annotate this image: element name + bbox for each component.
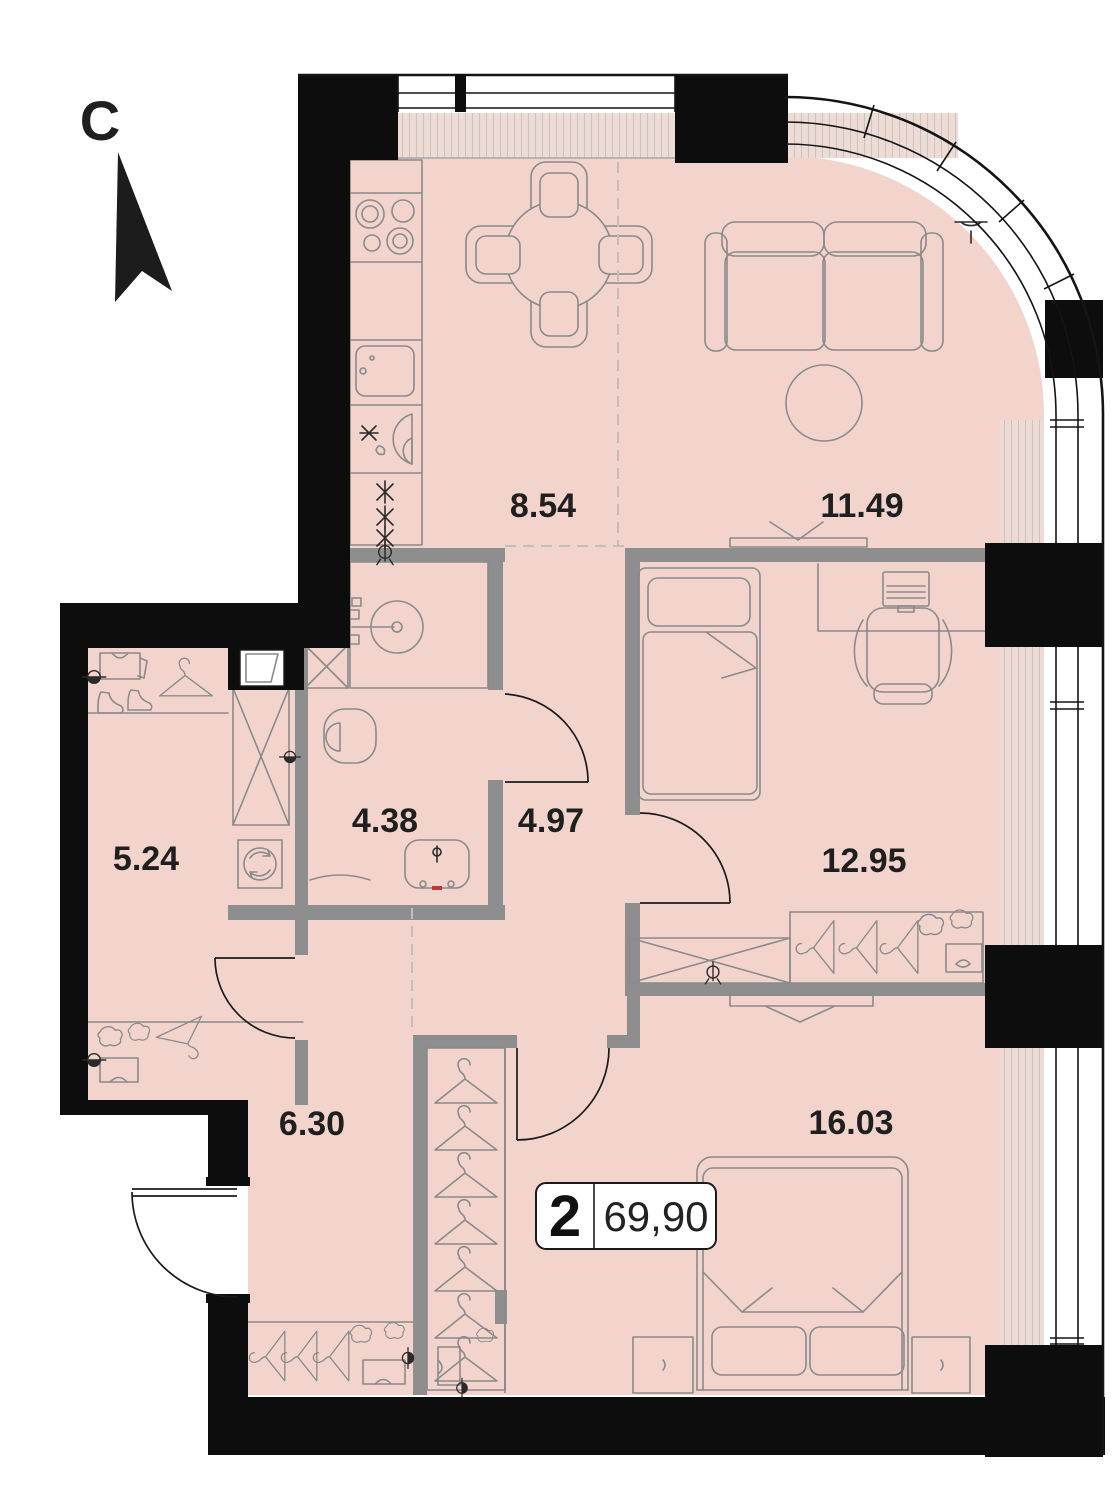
area-label-bedroom: 12.95 [821, 842, 906, 880]
entrance-door [132, 1189, 237, 1297]
area-label-corridor: 6.30 [279, 1105, 345, 1143]
floor-plan-page: 8.54 11.49 5.24 4.38 4.97 12.95 6.30 16.… [0, 0, 1115, 1495]
area-label-hallway: 4.97 [518, 802, 584, 840]
drain-mark [432, 886, 442, 890]
badge-total-area: 69,90 [603, 1193, 708, 1240]
area-label-kitchen: 8.54 [510, 487, 576, 525]
north-arrow-icon: С [80, 89, 172, 302]
apartment-badge: 2 69,90 [536, 1183, 716, 1249]
area-label-wardrobe-room: 5.24 [113, 840, 179, 878]
floor-plan-drawing: 8.54 11.49 5.24 4.38 4.97 12.95 6.30 16.… [0, 0, 1115, 1495]
north-label: С [80, 89, 120, 152]
badge-rooms-count: 2 [549, 1184, 581, 1249]
shaft-window [240, 650, 284, 686]
area-label-bathroom: 4.38 [352, 802, 418, 840]
area-label-master-bedroom: 16.03 [808, 1104, 893, 1142]
area-label-living: 11.49 [820, 487, 903, 525]
